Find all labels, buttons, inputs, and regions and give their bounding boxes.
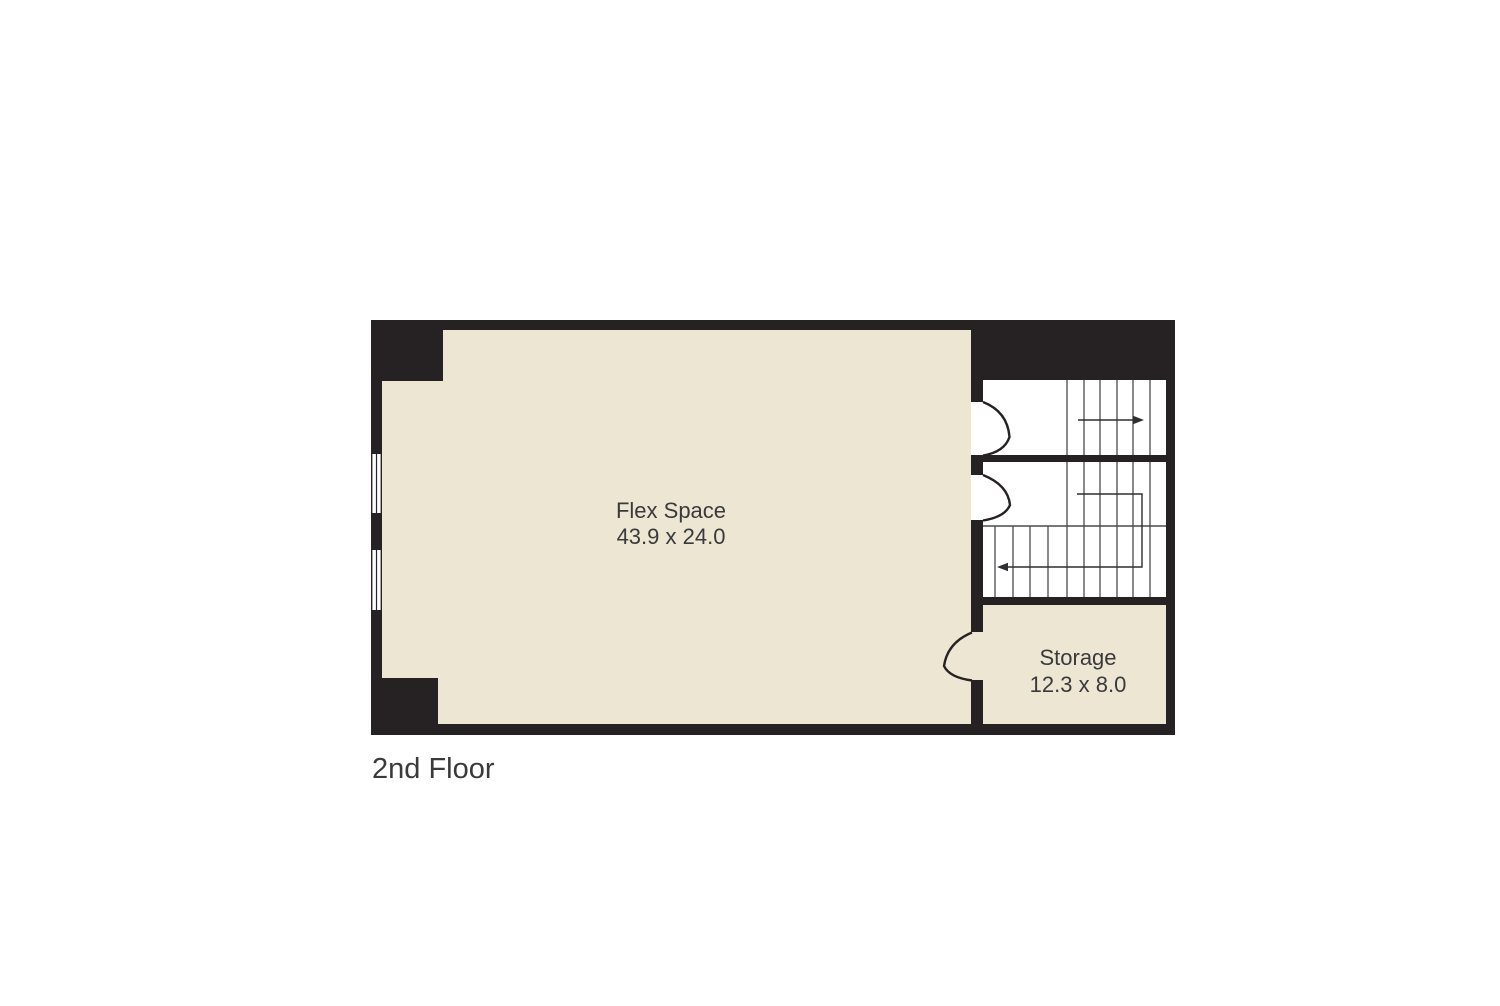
door-opening-bottom-stair <box>971 475 983 520</box>
stairwell-bottom-floor <box>983 462 1166 597</box>
storage-dimensions: 12.3 x 8.0 <box>1030 672 1127 697</box>
stairwell-top-floor <box>983 380 1166 455</box>
floor-label: 2nd Floor <box>372 753 495 785</box>
flex-space-dimensions: 43.9 x 24.0 <box>617 524 726 549</box>
floor-plan-svg: Flex Space 43.9 x 24.0 Storage 12.3 x 8.… <box>0 0 1500 1001</box>
window-symbol-upper <box>371 454 382 513</box>
flex-space-label: Flex Space <box>616 498 726 523</box>
door-opening-storage <box>971 632 983 680</box>
door-opening-top-stair <box>971 402 983 455</box>
floor-plan-container: Flex Space 43.9 x 24.0 Storage 12.3 x 8.… <box>0 0 1500 1001</box>
window-symbol-lower <box>371 550 382 610</box>
storage-label: Storage <box>1039 645 1116 670</box>
